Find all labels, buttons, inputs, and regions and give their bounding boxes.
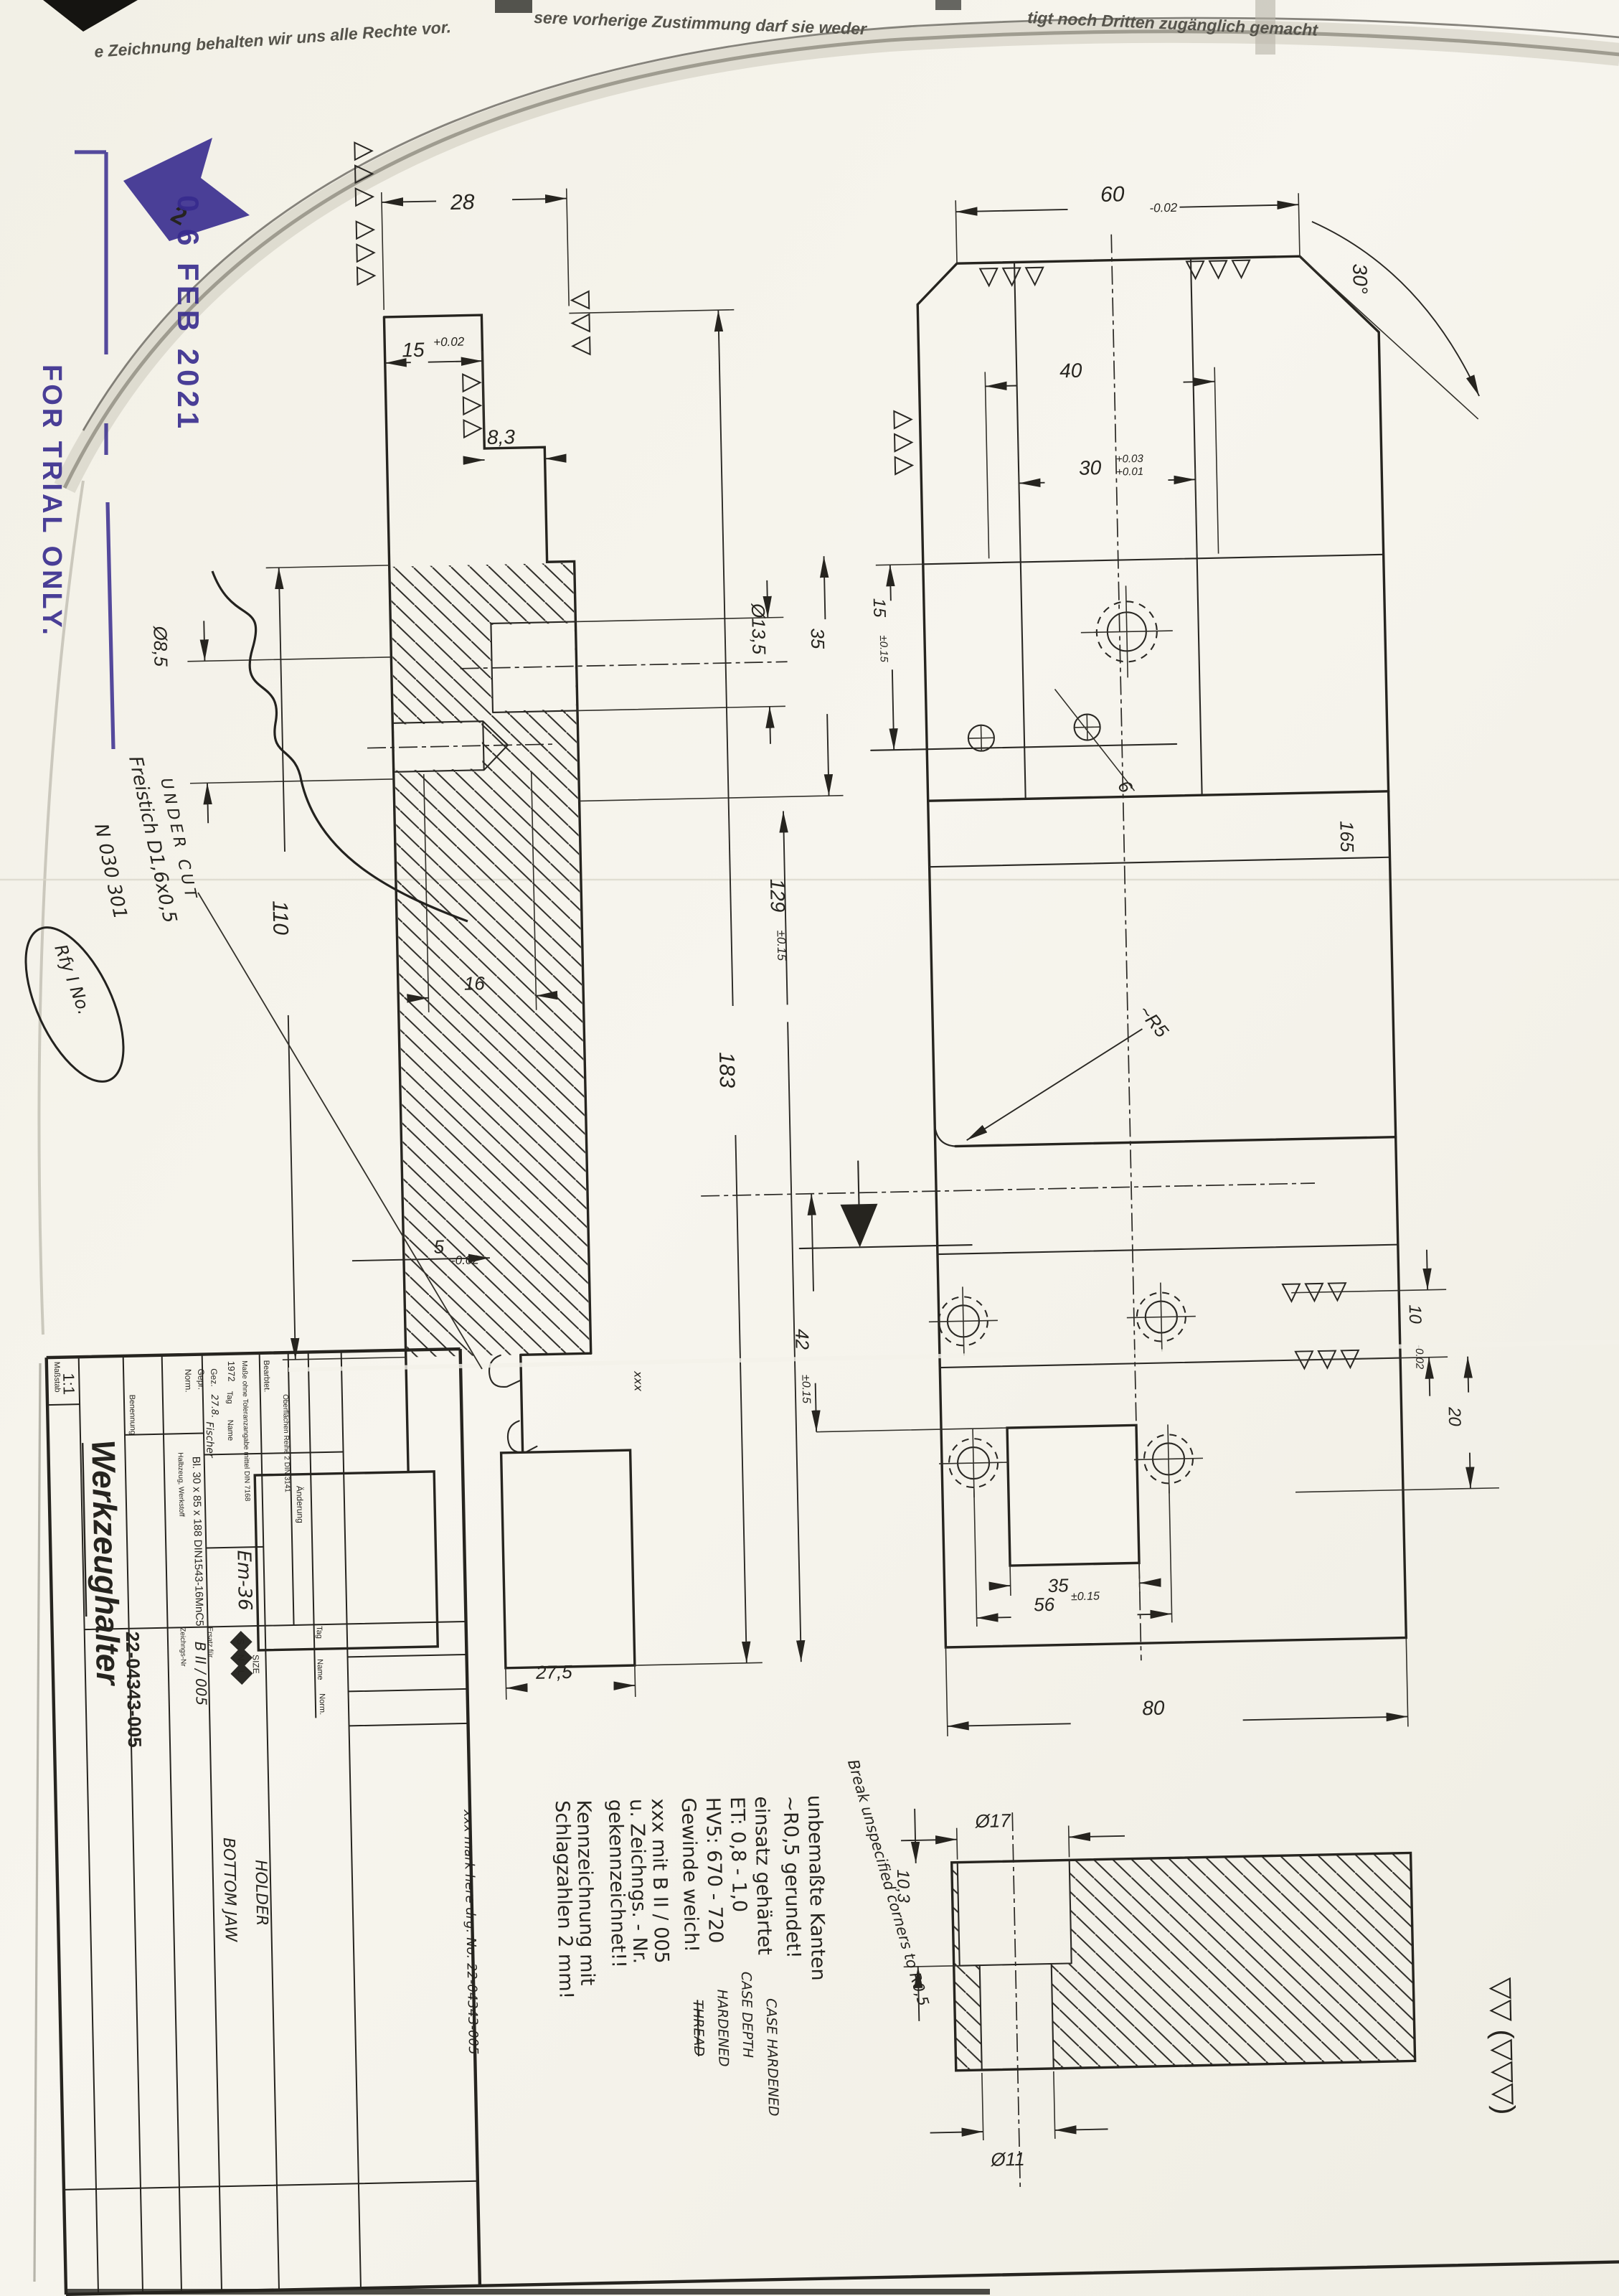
dim-10: 10 [1405,1304,1425,1325]
logo-letter-s: S [235,1638,246,1645]
dim-11: Ø11 [990,2148,1025,2170]
title-english-2: HOLDER [251,1860,270,1926]
foot-block [501,1450,635,1668]
dim-56-tol: ±0.15 [1071,1590,1100,1603]
dim-15-tol: +0.02 [433,335,465,349]
note-line-6-en: THREAD [690,2000,707,2056]
dim-8-3: 8,3 [487,425,516,448]
dim-15-right: 15 [869,598,889,618]
dim-80: 80 [1142,1697,1165,1720]
dim-17: Ø17 [974,1810,1011,1832]
em-number: Em-36 [232,1550,255,1611]
note-line-4-en: CASE DEPTH [738,1972,756,2059]
dim-27-5: 27,5 [535,1661,573,1683]
gez-label: Gez. [209,1368,220,1387]
bottom-notch [1007,1425,1139,1566]
dim-60-tol: -0.02 [1149,201,1178,215]
dim-129-tol: ±0.15 [774,930,788,961]
note-line-2: ~R0,5 gerundet! [779,1795,805,1959]
dim-35-left: 35 [807,628,829,649]
title-english-1: BOTTOM JAW [220,1838,240,1943]
ersatz-label: Ersatz für [206,1627,214,1658]
dim-30-tol1: +0.03 [1116,453,1144,466]
tag-header: Tag [225,1391,234,1404]
detail-hatching [1049,1853,1415,2068]
logo-letter-n: N [235,1654,246,1661]
trial-stamp: FOR TRIAL ONLY. [37,364,67,638]
dim-129: 129 [766,878,789,912]
dim-165-faint: 165 [1336,821,1358,853]
dim-20: 20 [1445,1406,1465,1427]
dim-5: 5 [433,1236,445,1257]
note-line-9: gekennzeichnet!! [604,1799,630,1968]
note-line-6: Gewinde weich! [677,1797,703,1952]
dim-8-5: Ø8,5 [149,625,171,667]
dim-56: 56 [1034,1594,1055,1616]
drawing-number: 22-04343-005 [122,1631,146,1748]
year-label: 1972 [226,1361,237,1382]
material-label: Halbzeug, Werkstoff [176,1452,186,1517]
dim-16: 16 [464,972,486,994]
note-line-3-en: CASE HARDENED [763,1998,781,2117]
scale-value: 1:1 [60,1373,78,1395]
drawing-title: Werkzeughalter [85,1439,127,1687]
dim-28: 28 [450,190,475,215]
note-line-8: u. Zeichngs. - Nr. [626,1799,651,1965]
xxx-mark: xxx [631,1370,646,1392]
general-surface-finish: ▽▽ (▽▽▽) [1486,1977,1520,2114]
aenderung-label: Änderung [295,1486,306,1523]
dim-15: 15 [402,339,425,362]
dim-42-tol: ±0.15 [799,1375,812,1403]
zeichnungsnr-label: Zeichngs-Nr [179,1627,187,1667]
norm-label: Norm. [183,1369,194,1393]
gez-name: Fischer [204,1421,216,1459]
note-line-4: ET: 0,8 - 1,0 [726,1797,750,1913]
dim-183: 183 [714,1052,739,1088]
dim-60: 60 [1100,182,1125,207]
dim-40: 40 [1059,359,1082,382]
note-line-7: xxx mit B II / 005 [647,1798,673,1964]
rev-norm-header: Norm. [318,1693,327,1715]
rev-name-header: Name [316,1659,325,1680]
dim-30-tol2: +0.01 [1116,466,1143,479]
name-header: Name [226,1420,235,1441]
dim-15-right-tol: ±0.15 [877,635,890,662]
gepr-label: Gepr. [196,1368,207,1390]
note-line-1: unbemaßte Kanten [803,1795,829,1981]
dim-110: 110 [268,900,292,936]
note-line-5: HV5: 670 - 720 [702,1797,727,1943]
date-stamp: 0 6 FEB 2021 [171,195,205,433]
dim-13-5: Ø13,5 [747,603,770,655]
dim-42: 42 [791,1329,813,1350]
benennung-label: Benennung [128,1395,137,1436]
gez-date: 27.8. [209,1394,220,1418]
note-line-5-en: HARDENED [714,1989,731,2066]
scanned-drawing-sheet: e Zeichnung behalten wir uns alle Rechte… [0,0,1619,2296]
rev-tag-header: Tag [315,1626,324,1639]
dim-30deg: 30° [1349,263,1372,294]
note-line-3: einsatz gehärtet [750,1796,776,1955]
dim-5-tol: -0.02 [451,1253,480,1267]
bearbeitet-label: Bearbtet. [262,1360,271,1393]
logo-letter-l: L [236,1670,247,1675]
note-line-11: Schlagzahlen 2 mm! [551,1800,577,2000]
dim-30: 30 [1079,456,1102,479]
